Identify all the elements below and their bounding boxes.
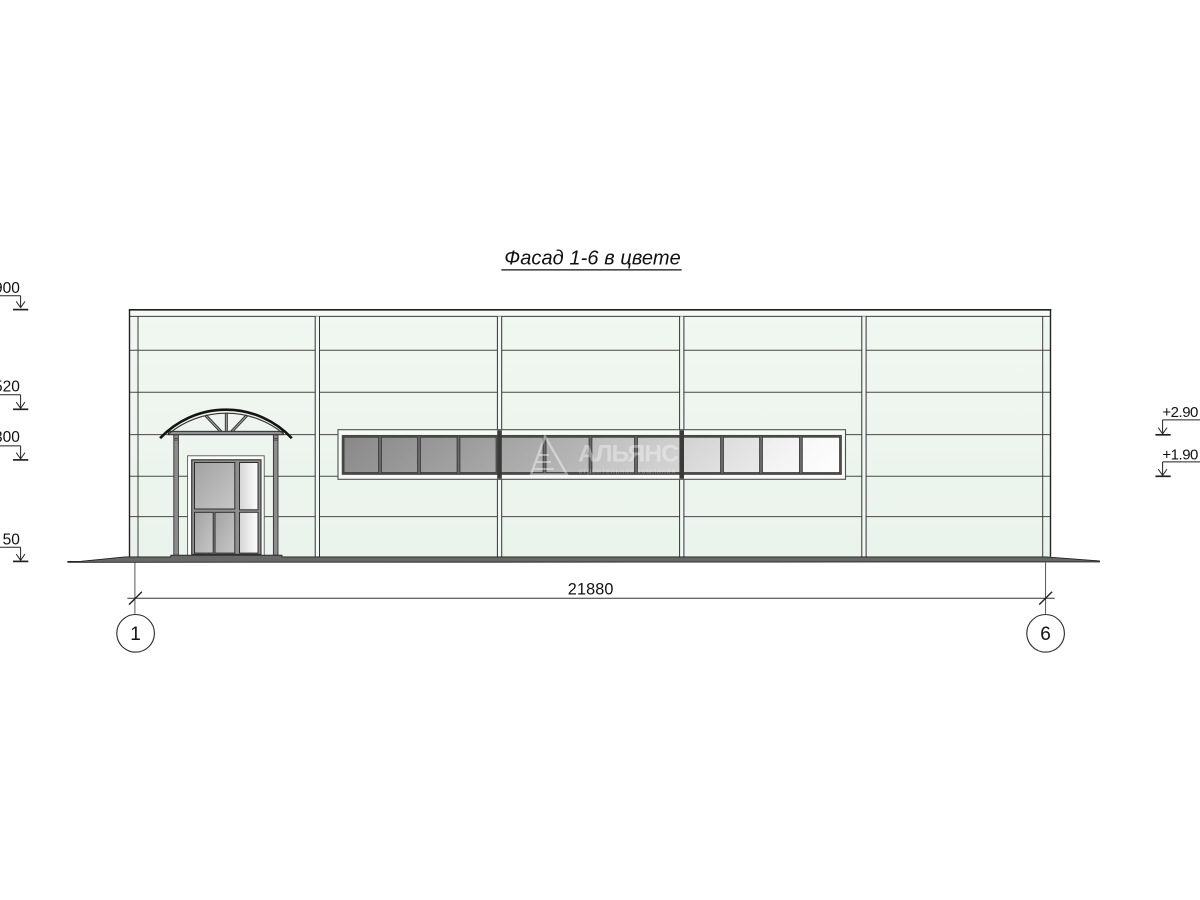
svg-text:300: 300 [0,429,20,446]
svg-text:900: 900 [0,280,20,297]
svg-text:50: 50 [3,531,21,548]
svg-text:1: 1 [130,624,141,645]
svg-text:Фасад 1-6 в цвете: Фасад 1-6 в цвете [504,247,681,269]
svg-text:520: 520 [0,378,20,395]
svg-text:АЛЬЯНС: АЛЬЯНС [578,440,679,467]
svg-text:21880: 21880 [568,581,614,599]
svg-text:6: 6 [1040,624,1051,645]
svg-text:+1.90: +1.90 [1162,447,1198,464]
svg-text:+2.90: +2.90 [1162,404,1198,421]
svg-text:строительная компания: строительная компания [579,466,676,475]
